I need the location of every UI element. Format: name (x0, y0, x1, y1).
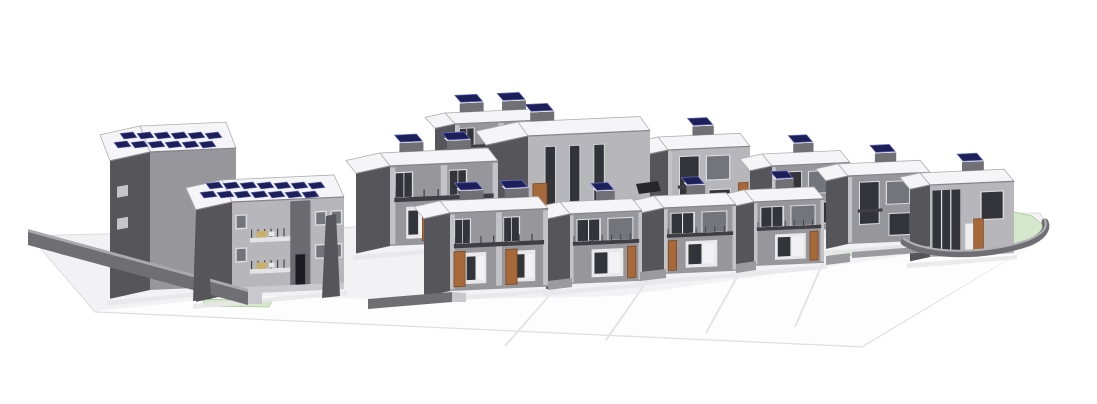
window (859, 181, 879, 224)
roof-bulkhead (530, 111, 554, 121)
balcony-rail (423, 190, 424, 197)
balcony-rail (583, 235, 584, 241)
balcony-rail (611, 234, 612, 240)
entrance-door (506, 249, 517, 285)
window (467, 256, 476, 280)
pilaster (664, 209, 668, 273)
balcony-rail (480, 236, 481, 243)
roof-bulkhead (596, 191, 615, 201)
balcony-rail (785, 221, 786, 227)
balcony-rail (776, 221, 777, 227)
roof-bulkhead (502, 100, 526, 110)
pilaster (390, 167, 395, 244)
balcony-rail (696, 227, 697, 233)
window (688, 244, 701, 264)
porch-wall (525, 254, 533, 278)
balcony-rail (251, 230, 252, 238)
balcony-rail (705, 227, 706, 233)
window-mullion (682, 213, 683, 233)
window (237, 216, 246, 228)
balcony-rail (455, 237, 456, 244)
side-wall (826, 176, 848, 249)
window-mullion (772, 207, 773, 226)
balcony-rail (251, 261, 252, 269)
balcony-rail (277, 260, 278, 268)
entrance-door (295, 254, 305, 286)
window-mullion (941, 190, 942, 252)
window (982, 191, 1003, 219)
side-window (117, 185, 128, 198)
side-wall (110, 152, 150, 299)
pilaster (543, 210, 548, 285)
roof-bulkhead (793, 143, 813, 153)
window (707, 156, 729, 180)
balcony-rail (574, 236, 575, 242)
roof-bulkhead (776, 179, 794, 189)
window-mullion (458, 171, 459, 195)
pilaster (821, 200, 825, 262)
window (889, 213, 910, 236)
balcony-rail (812, 220, 813, 226)
entrance-door (974, 219, 984, 252)
pilaster (496, 212, 502, 286)
roof-bulkhead (686, 185, 705, 195)
window-mullion (950, 190, 951, 252)
balcony-rail (714, 226, 715, 232)
glazed-wall (933, 189, 961, 252)
balcony-rail (493, 236, 494, 243)
window (778, 237, 791, 257)
site-model-rendering (0, 0, 1097, 404)
side-wall (424, 213, 450, 297)
porch-wall (609, 252, 621, 274)
balcony-rail (506, 235, 507, 242)
balcony-rail (620, 234, 621, 240)
balcony-rail (277, 228, 278, 236)
balcony-rail (803, 220, 804, 226)
side-wall (640, 208, 664, 279)
pilaster (732, 206, 736, 270)
roof-bulkhead (875, 152, 896, 162)
side-window (117, 217, 128, 230)
side-wall (356, 166, 390, 253)
architectural-site-render (0, 0, 1097, 404)
balcony-rail (395, 191, 396, 198)
window (316, 245, 325, 257)
window (237, 249, 246, 261)
balcony-rail (794, 220, 795, 226)
balcony-furniture (269, 263, 275, 268)
window (408, 210, 418, 234)
balcony-rail (724, 226, 725, 232)
balcony-rail (531, 234, 532, 241)
entrance-door (454, 251, 465, 287)
roof-bulkhead (692, 125, 713, 135)
pilaster (638, 212, 642, 279)
balcony-furniture (257, 231, 267, 238)
porch-wall (792, 236, 803, 256)
balcony-rail (686, 228, 687, 234)
balcony-rail (472, 140, 473, 145)
roof-bulkhead (460, 190, 484, 200)
balcony-rail (630, 233, 631, 239)
pilaster (848, 177, 852, 242)
balcony-rail (767, 222, 768, 228)
balcony-rail (452, 188, 453, 195)
porch-wall (476, 256, 484, 280)
roof-bulkhead (505, 188, 529, 198)
balcony-rail (519, 234, 520, 241)
balcony-rail (677, 228, 678, 234)
balcony-rail (668, 229, 669, 235)
balcony-rail (758, 222, 759, 228)
balcony-rail (284, 259, 285, 267)
window (316, 212, 325, 224)
balcony-rail (468, 237, 469, 244)
balcony-rail (602, 235, 603, 241)
balcony-rail (438, 189, 439, 196)
retaining-wall (248, 290, 262, 304)
side-wall (546, 214, 570, 289)
roof-bulkhead (962, 161, 984, 171)
entrance-door (628, 246, 636, 278)
balcony-rail (409, 190, 410, 197)
roof-bulkhead (460, 102, 484, 112)
balcony-furniture (269, 231, 275, 236)
window-mullion (511, 218, 512, 241)
window (594, 252, 607, 274)
entrance-door (810, 231, 818, 260)
roof-bulkhead (447, 140, 471, 150)
balcony-furniture (257, 262, 267, 269)
retaining-wall (452, 292, 466, 302)
window-mullion (404, 173, 405, 197)
window-mullion (588, 220, 589, 241)
pilaster (754, 203, 758, 265)
window-mullion (462, 220, 463, 243)
roof-bulkhead (399, 142, 423, 152)
pilaster (570, 215, 574, 282)
balcony-rail (592, 235, 593, 241)
porch-wall (703, 243, 715, 263)
entrance-door (668, 240, 676, 270)
balcony-rail (284, 228, 285, 236)
